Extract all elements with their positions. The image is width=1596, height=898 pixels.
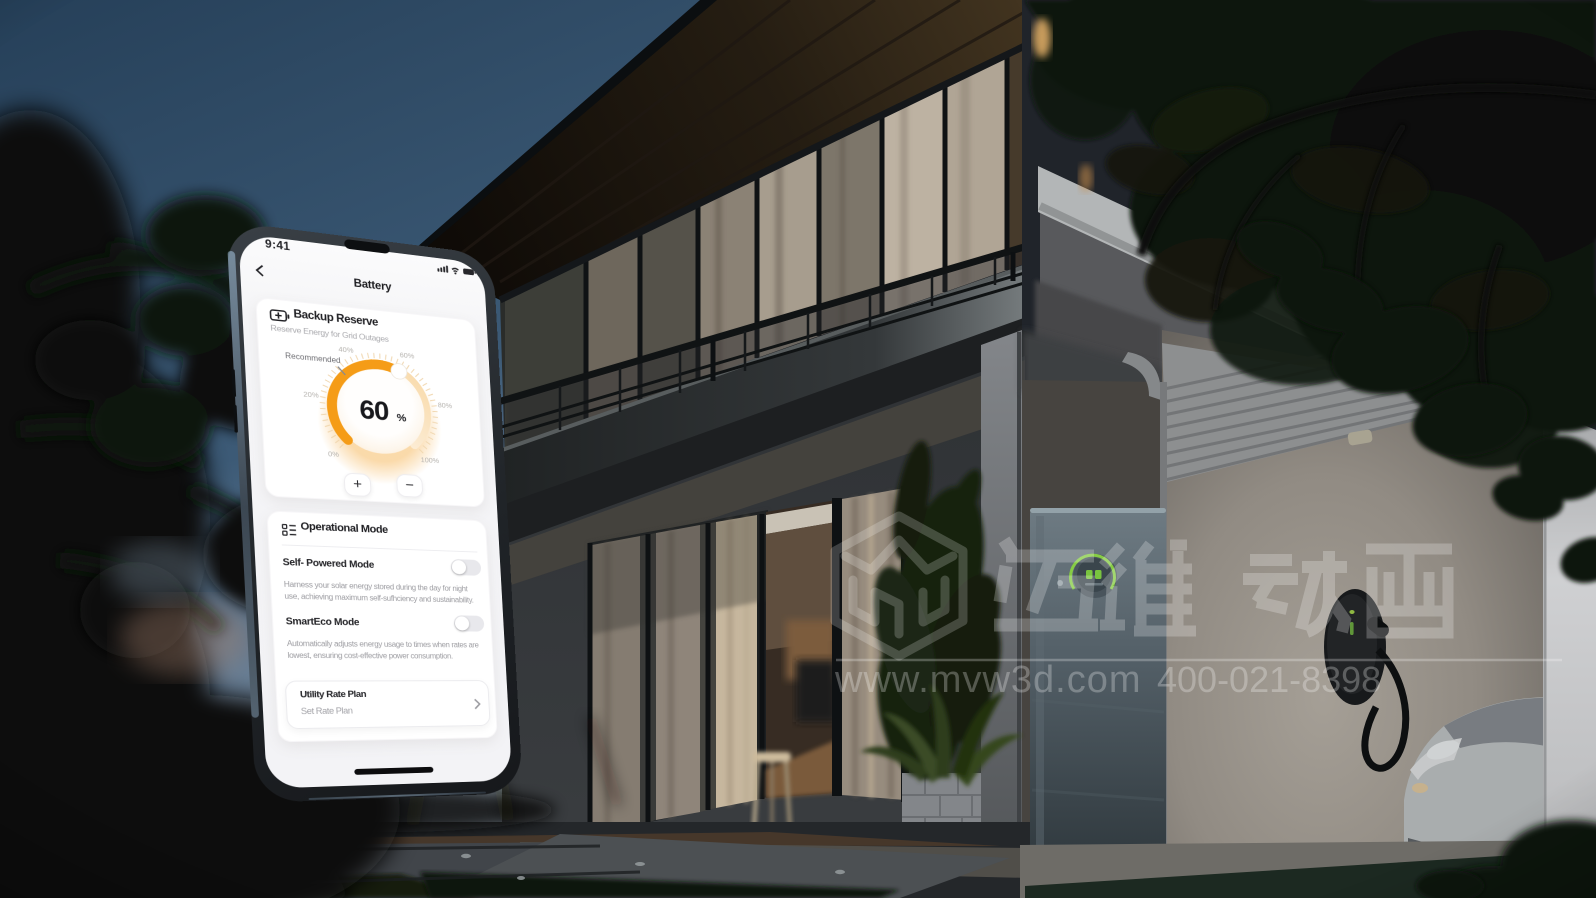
svg-text:20%: 20% [303, 390, 319, 399]
svg-text:%: % [396, 411, 407, 424]
svg-text:40%: 40% [338, 345, 353, 354]
svg-text:60%: 60% [400, 351, 415, 360]
svg-text:Recommended: Recommended [285, 351, 341, 365]
svg-text:400-021-8398: 400-021-8398 [1157, 659, 1381, 700]
svg-text:60: 60 [359, 395, 390, 427]
svg-text:100%: 100% [421, 456, 440, 465]
svg-text:80%: 80% [438, 401, 453, 410]
svg-text:0%: 0% [328, 450, 339, 459]
svg-text:www.mvw3d.com: www.mvw3d.com [834, 659, 1142, 701]
